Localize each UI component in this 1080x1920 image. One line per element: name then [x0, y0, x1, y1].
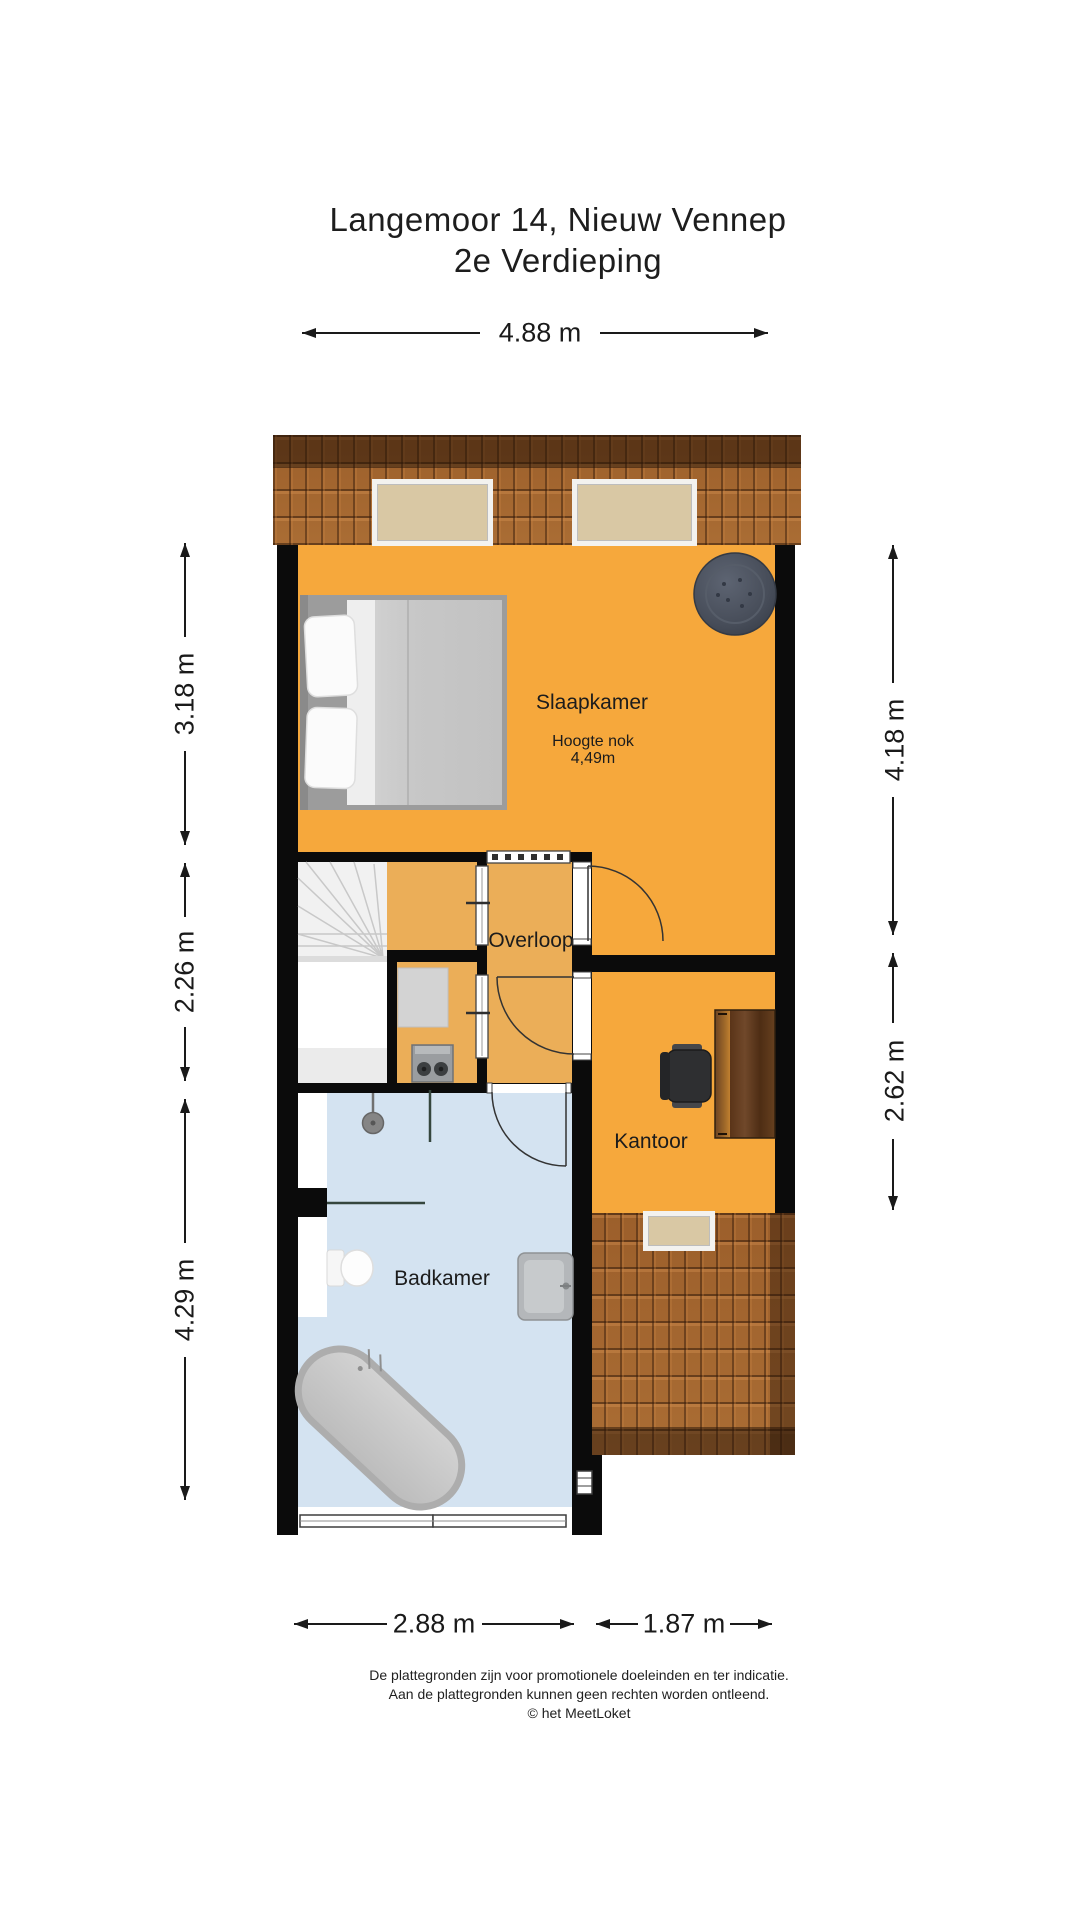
window-badkamer-south	[300, 1515, 566, 1527]
dimension-lines	[185, 333, 893, 1624]
dim-top: 4.88 m	[499, 318, 582, 349]
door-slaapkamer	[573, 862, 663, 945]
dim-left-middle: 2.26 m	[170, 931, 201, 1014]
label-slaapkamer: Slaapkamer	[536, 691, 648, 715]
stairs	[298, 862, 387, 962]
sink	[518, 1253, 573, 1320]
office-chair	[660, 1044, 711, 1108]
door-badkamer	[487, 1083, 571, 1166]
label-badkamer: Badkamer	[394, 1267, 490, 1291]
dim-left-lower: 4.29 m	[170, 1259, 201, 1342]
round-chair	[694, 553, 776, 635]
label-kantoor: Kantoor	[614, 1130, 688, 1154]
glass-partition-overloop-upper	[466, 866, 490, 945]
window-badkamer-east	[577, 1471, 592, 1494]
label-overloop: Overloop	[488, 929, 573, 953]
bathtub	[276, 1320, 490, 1529]
footer-disclaimer-line1: De plattegronden zijn voor promotionele …	[369, 1666, 789, 1685]
dim-bottom-left: 2.88 m	[393, 1609, 476, 1640]
footer-disclaimer-line2: Aan de plattegronden kunnen geen rechten…	[389, 1685, 770, 1704]
plan-linework-layer	[0, 0, 1080, 1920]
label-hoogte-nok: Hoogte nok	[552, 733, 634, 750]
dim-right-upper: 4.18 m	[880, 699, 911, 782]
label-hoogte-waarde: 4,49m	[571, 750, 615, 767]
glass-partition-overloop-lower	[466, 975, 490, 1058]
dim-bottom-right: 1.87 m	[643, 1609, 726, 1640]
dimension-arrowheads	[180, 328, 898, 1629]
washer	[412, 1045, 453, 1082]
floorplan-page: Langemoor 14, Nieuw Vennep 2e Verdieping	[0, 0, 1080, 1920]
dim-left-upper: 3.18 m	[170, 653, 201, 736]
glass-partition-slaapkamer	[487, 851, 570, 863]
footer-copyright: © het MeetLoket	[528, 1704, 631, 1723]
toilet	[327, 1250, 373, 1286]
shower	[327, 1090, 430, 1203]
desk	[715, 1010, 775, 1138]
dim-right-lower: 2.62 m	[880, 1040, 911, 1123]
door-kantoor	[497, 972, 591, 1060]
bed	[300, 595, 507, 810]
closet-cabinet	[398, 968, 448, 1027]
